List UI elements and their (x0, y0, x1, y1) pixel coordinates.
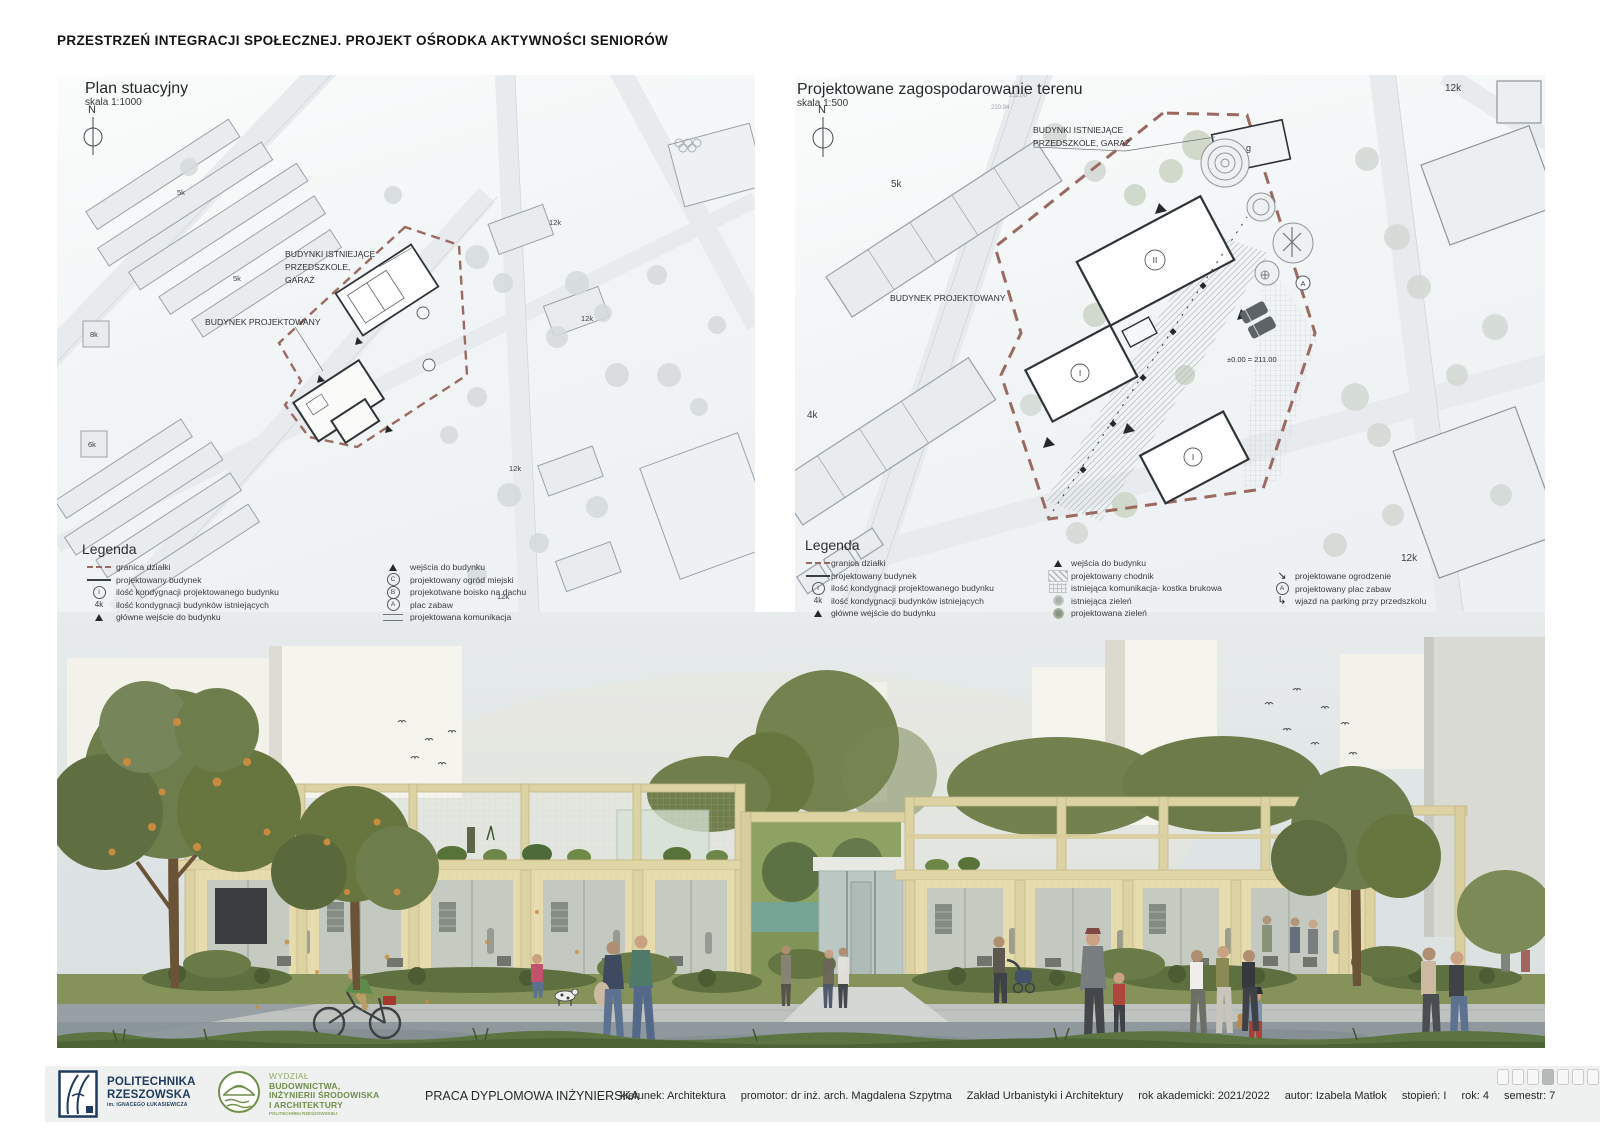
label-existing-2: PRZEDSZKOLE, (285, 262, 350, 272)
detail-zaklad: Zakład Urbanistyki i Architektury (967, 1090, 1124, 1102)
label-existing-1: BUDYNKI ISTNIEJĄCE (1033, 125, 1124, 135)
playground-circle-icon: A (376, 598, 410, 611)
legend-item: istniejąca zieleń (1045, 595, 1261, 608)
map-annotation: 5k (891, 179, 903, 190)
pitch-circle-icon: B (376, 586, 410, 599)
legend-item: główne wejście do budynku (82, 611, 364, 624)
work-type: PRACA DYPLOMOWA INŻYNIERSKA (425, 1089, 639, 1103)
legend-item: Aprojektowany plac zabaw (1269, 583, 1487, 596)
legend-item: Bprojekotwane boisko na dachu (376, 586, 586, 599)
paving-grid-icon (1045, 583, 1071, 593)
map-annotation: 4k (807, 410, 819, 421)
legend-item: Iilość kondygnacji projektowanego budynk… (805, 582, 1037, 595)
detail-kierunek: kierunek: Architektura (620, 1090, 726, 1102)
faculty-logo (217, 1070, 261, 1119)
page-square (1527, 1069, 1539, 1085)
plan-500-header: Projektowane zagospodarowanie terenu ska… (797, 81, 1083, 110)
building-line-icon (805, 575, 831, 577)
label-proposed: BUDYNEK PROJEKTOWANY (205, 317, 321, 327)
detail-semestr: semestr: 7 (1504, 1090, 1555, 1102)
fence-arrow-icon: ↘ (1269, 571, 1295, 581)
legend-plan-1000: Legenda granica działki projektowany bud… (82, 541, 586, 624)
map-annotation: 12k (1445, 83, 1462, 94)
label-existing-1: BUDYNKI ISTNIEJĄCE (285, 249, 376, 259)
chalkboard (215, 888, 267, 944)
label-existing-3: GARAŻ (285, 275, 315, 285)
entrance-icon (1045, 560, 1071, 567)
legend-item: projektowany chodnik (1045, 570, 1261, 583)
legend-item: wejścia do budynku (376, 561, 586, 574)
plan-500-scale: skala 1:500 (797, 98, 1083, 110)
legend-item: ↳wjazd na parking przy przedszkolu (1269, 595, 1487, 608)
boundary-line-icon (82, 566, 116, 568)
legend-item: granica działki (82, 561, 364, 574)
map-annotation: 5k (233, 274, 241, 283)
terrace-person (467, 827, 475, 853)
legend-item: główne wejście do budynku (805, 607, 1037, 620)
boundary-line-icon (805, 562, 831, 564)
shrub (1351, 946, 1423, 978)
plan-1000-title: Plan stuacyjny (85, 80, 188, 97)
site-plan-1000-map: N BUDYNKI ISTNIEJĄCE PRZEDSZKOLE, GARAŻ … (57, 75, 755, 612)
detail-autor: autor: Izabela Matłok (1285, 1090, 1387, 1102)
page-square (1557, 1069, 1569, 1085)
garden-circle-icon: C (376, 573, 410, 586)
label-proposed: BUDYNEK PROJEKTOWANY (890, 293, 1006, 303)
legend-item: projektowany budynek (805, 570, 1037, 583)
site-plan-500: N BUDYNKI ISTNIEJĄCE PRZEDSZKOLE, GARAŻ … (795, 75, 1545, 612)
shrub (183, 950, 251, 978)
map-annotation: 5k (177, 188, 185, 197)
proposed-green-icon (1045, 608, 1071, 619)
storeys-circle-icon: I (82, 586, 116, 599)
entrance-icon (376, 564, 410, 571)
storeys-text-icon: 4k (805, 596, 831, 605)
entry-arrow-icon: ↳ (1269, 596, 1295, 606)
rendering-scene (57, 612, 1545, 1048)
building-label: II (1153, 255, 1158, 265)
map-annotation: 12k (581, 314, 593, 323)
existing-green-icon (1045, 595, 1071, 606)
circulation-icon (376, 614, 410, 621)
detail-promotor: promotor: dr inż. arch. Magdalena Szpytm… (741, 1090, 952, 1102)
legend-item: Iilość kondygnacji projektowanego budynk… (82, 586, 364, 599)
label-existing-2: PRZEDSZKOLE, GARAŻ (1033, 138, 1130, 148)
legend-item: istniejąca komunikacja- kostka brukowa (1045, 582, 1261, 595)
page-square (1512, 1069, 1524, 1085)
sidewalk-hatch-icon (1045, 570, 1071, 582)
legend-plan-500: Legenda granica działki projektowany bud… (805, 537, 1487, 620)
legend-item: Aplac zabaw (376, 599, 586, 612)
legend-title: Legenda (805, 537, 1487, 553)
politechnika-name: POLITECHNIKA RZESZOWSKA im. IGNACEGO ŁUK… (107, 1076, 196, 1108)
building-label: I (1192, 452, 1194, 462)
legend-title: Legenda (82, 541, 586, 557)
page-square (1497, 1069, 1509, 1085)
page-title: PRZESTRZEŃ INTEGRACJI SPOŁECZNEJ. PROJEK… (57, 33, 668, 48)
legend-item: 4kilość kondygnacji budynków istniejącyc… (805, 595, 1037, 608)
storeys-circle-icon: I (805, 582, 831, 595)
map-annotation: 8k (90, 330, 98, 339)
detail-stopien: stopień: I (1402, 1090, 1447, 1102)
page-indicator (1497, 1069, 1600, 1085)
map-annotation: 12k (509, 464, 521, 473)
building-line-icon (82, 579, 116, 581)
page-square-active (1542, 1069, 1554, 1085)
legend-item: projektowana zieleń (1045, 607, 1261, 620)
legend-item: granica działki (805, 557, 1037, 570)
main-entrance-icon (82, 614, 116, 621)
building-label: I (1079, 368, 1081, 378)
playground-label: A (1301, 281, 1306, 288)
page-square (1572, 1069, 1584, 1085)
legend-item: ↘projektowane ogrodzenie (1269, 570, 1487, 583)
elevation-label: ±0.00 = 211.00 (1227, 355, 1277, 364)
map-annotation: 12k (549, 218, 561, 227)
footer-bar: POLITECHNIKA RZESZOWSKA im. IGNACEGO ŁUK… (45, 1066, 1600, 1122)
legend-item: projektowana komunikacja (376, 611, 586, 624)
map-annotation: 6k (88, 440, 96, 449)
legend-item: projektowany budynek (82, 574, 364, 587)
site-plan-1000: N BUDYNKI ISTNIEJĄCE PRZEDSZKOLE, GARAŻ … (57, 75, 755, 612)
main-entrance-icon (805, 610, 831, 617)
architectural-rendering (57, 612, 1545, 1048)
building-label-g: g (1246, 143, 1251, 153)
detail-rok-akademicki: rok akademicki: 2021/2022 (1138, 1090, 1269, 1102)
page-square (1587, 1069, 1599, 1085)
site-plan-500-map: N BUDYNKI ISTNIEJĄCE PRZEDSZKOLE, GARAŻ … (795, 75, 1545, 612)
legend-item: wejścia do budynku (1045, 557, 1261, 570)
playground-circle-icon: A (1269, 582, 1295, 595)
plan-500-title: Projektowane zagospodarowanie terenu (797, 81, 1083, 98)
entrance-canopy (813, 857, 909, 871)
plan-1000-header: Plan stuacyjny skala 1:1000 (85, 80, 188, 109)
plan-1000-scale: skala 1:1000 (85, 97, 188, 109)
politechnika-logo (58, 1070, 98, 1123)
legend-item: 4kilość kondygnacji budynków istniejącyc… (82, 599, 364, 612)
legend-item: Cprojektowany ogród miejski (376, 574, 586, 587)
footer-details: kierunek: Architektura promotor: dr inż.… (620, 1090, 1555, 1102)
storeys-text-icon: 4k (82, 600, 116, 609)
faculty-name: WYDZIAŁ BUDOWNICTWA, INŻYNIERII ŚRODOWIS… (269, 1072, 379, 1116)
detail-rok: rok: 4 (1461, 1090, 1489, 1102)
